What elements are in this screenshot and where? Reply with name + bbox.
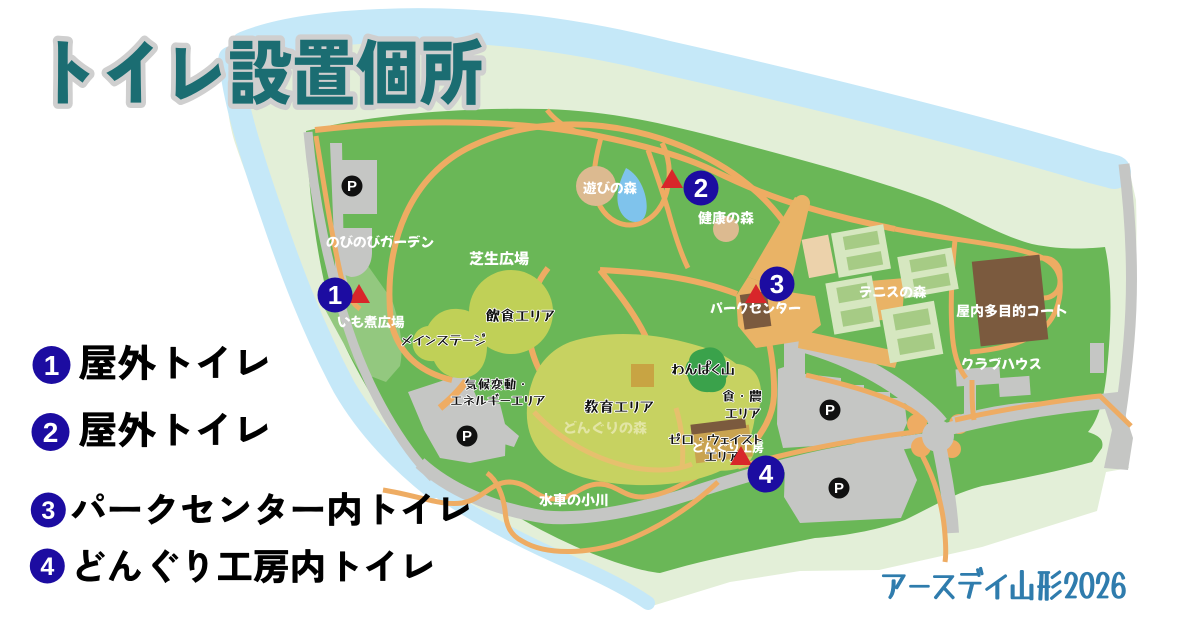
svg-text:P: P <box>347 178 357 195</box>
svg-text:4: 4 <box>759 459 774 489</box>
svg-text:3: 3 <box>770 269 784 299</box>
svg-text:P: P <box>825 402 835 419</box>
svg-text:2: 2 <box>43 417 59 448</box>
svg-text:4: 4 <box>40 553 54 581</box>
svg-text:3: 3 <box>41 497 55 525</box>
svg-text:2: 2 <box>694 173 708 203</box>
svg-text:P: P <box>834 480 844 497</box>
svg-text:P: P <box>462 428 472 445</box>
svg-text:1: 1 <box>44 350 60 381</box>
svg-text:1: 1 <box>328 280 342 310</box>
